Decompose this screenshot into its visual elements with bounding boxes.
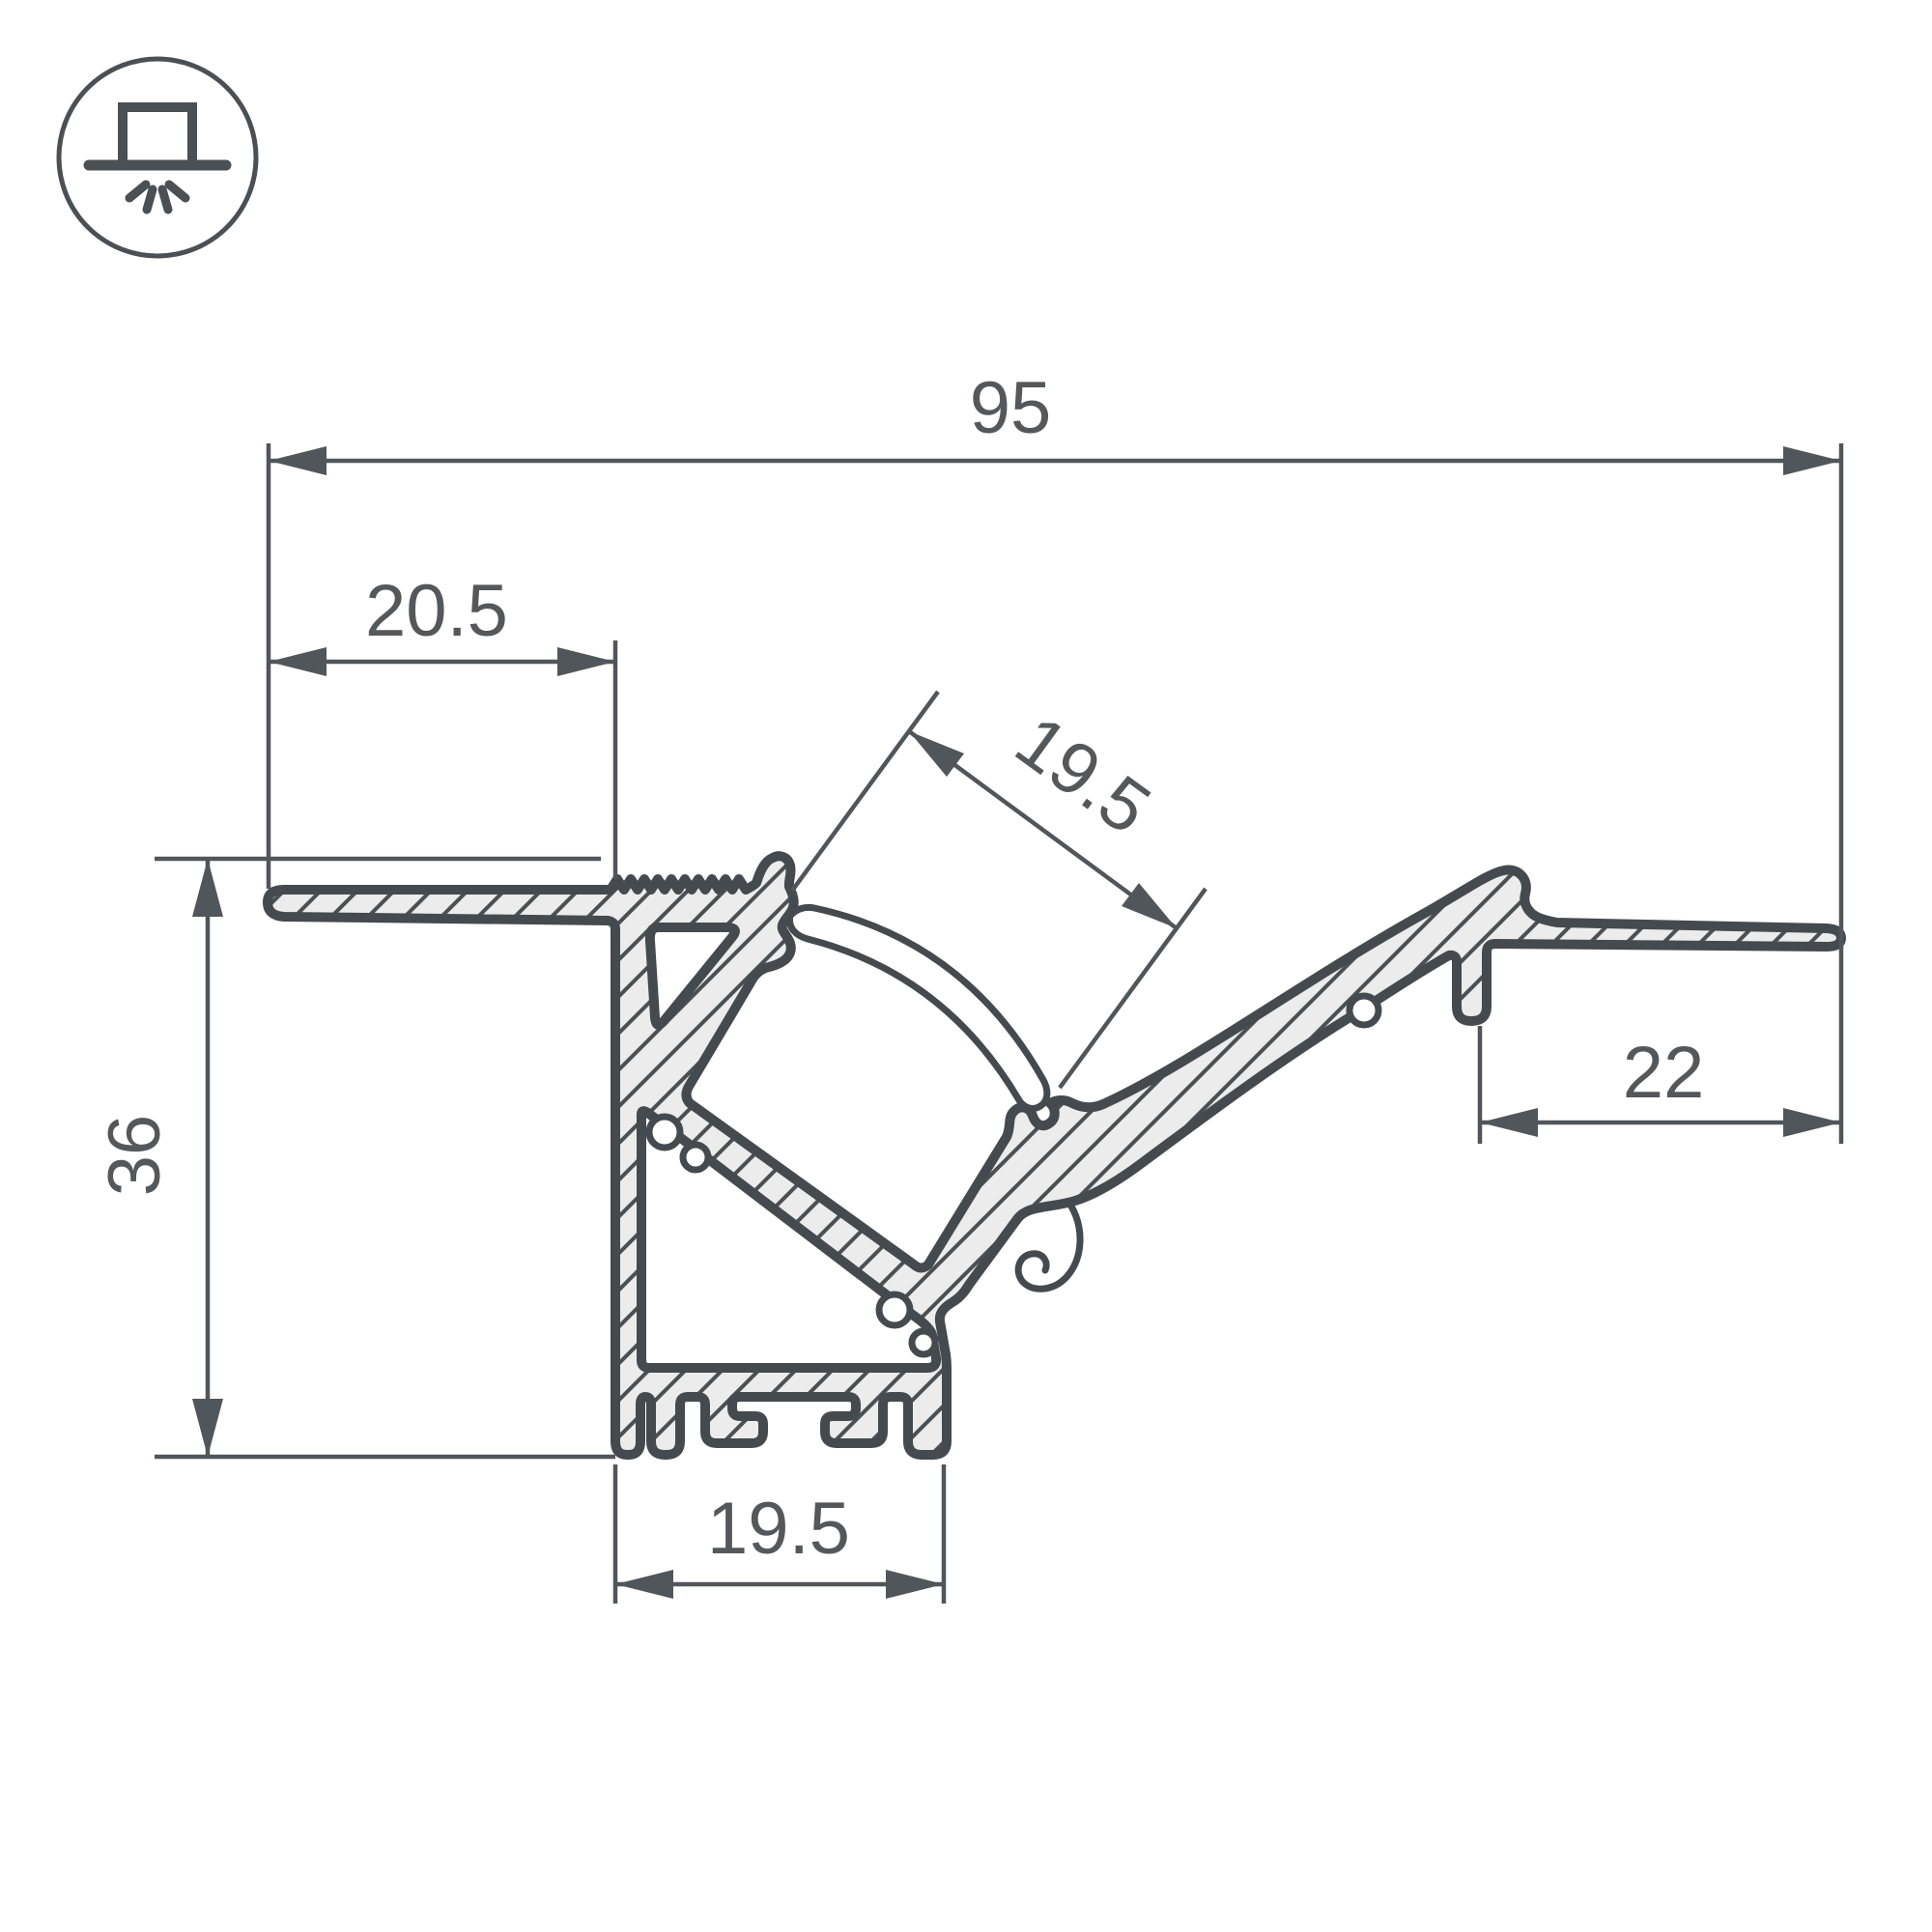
dim-label-base-width: 19.5 bbox=[707, 1488, 850, 1570]
wing-notch-icon bbox=[1350, 996, 1378, 1025]
dim-label-right-flange: 22 bbox=[1623, 1032, 1705, 1114]
dim-label-height: 36 bbox=[94, 1115, 176, 1197]
drawing-canvas: 95 20.5 36 19.5 22 19.5 bbox=[0, 0, 1932, 1932]
dim-label-overall-width: 95 bbox=[970, 367, 1052, 449]
clip-curl-icon bbox=[683, 1145, 708, 1170]
clip-curl-icon bbox=[649, 1117, 680, 1148]
clip-curl-icon bbox=[912, 1331, 935, 1354]
page-background bbox=[0, 0, 1932, 1932]
dim-label-left-flange: 20.5 bbox=[365, 570, 508, 652]
clip-curl-icon bbox=[879, 1294, 910, 1325]
technical-drawing-page: 95 20.5 36 19.5 22 19.5 bbox=[0, 0, 1932, 1932]
